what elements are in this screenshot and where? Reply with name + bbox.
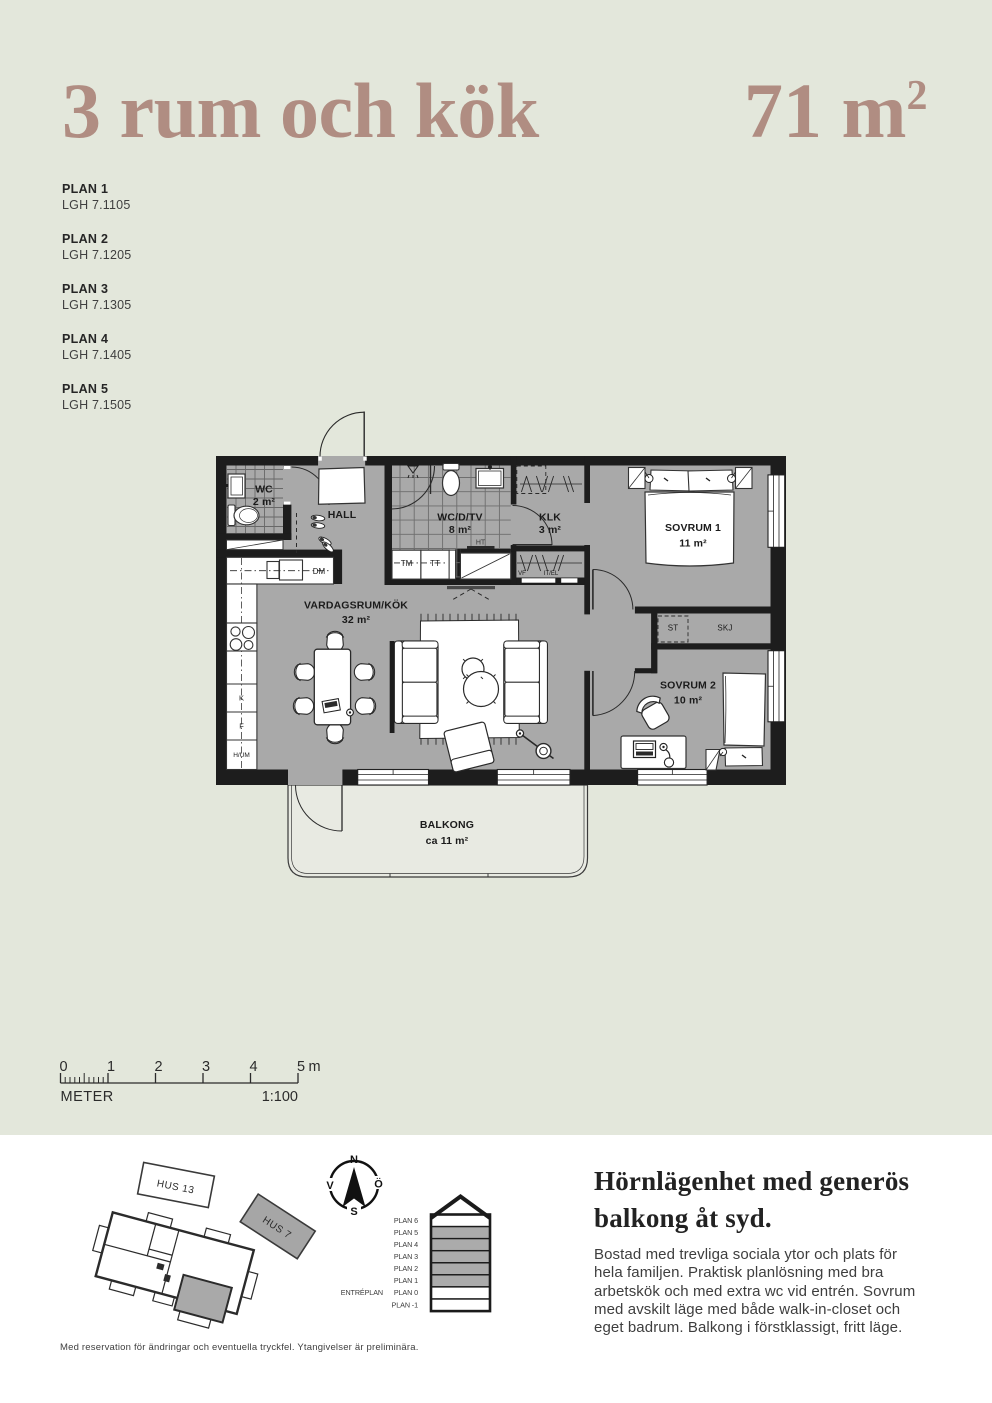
svg-text:3: 3 bbox=[202, 1059, 210, 1075]
svg-text:2: 2 bbox=[155, 1059, 163, 1075]
svg-text:0: 0 bbox=[60, 1059, 68, 1075]
svg-text:TT: TT bbox=[430, 559, 440, 568]
svg-text:PLAN 4: PLAN 4 bbox=[394, 1240, 418, 1249]
svg-text:F: F bbox=[239, 722, 244, 731]
svg-text:H/UM: H/UM bbox=[233, 752, 250, 759]
svg-text:WC/D/TV: WC/D/TV bbox=[437, 512, 482, 524]
svg-text:ST: ST bbox=[668, 624, 679, 633]
svg-text:8 m²: 8 m² bbox=[449, 524, 472, 536]
svg-text:10 m²: 10 m² bbox=[674, 695, 703, 707]
svg-text:DM: DM bbox=[313, 567, 326, 576]
svg-text:PLAN -1: PLAN -1 bbox=[392, 1300, 419, 1309]
svg-text:3 m²: 3 m² bbox=[539, 524, 562, 536]
svg-text:HT: HT bbox=[476, 540, 486, 547]
svg-text:ca 11 m²: ca 11 m² bbox=[426, 835, 469, 847]
svg-text:PLAN 2: PLAN 2 bbox=[394, 1264, 418, 1273]
svg-text:SOVRUM 1: SOVRUM 1 bbox=[665, 522, 721, 534]
svg-text:VF: VF bbox=[518, 571, 526, 577]
svg-text:11 m²: 11 m² bbox=[679, 538, 707, 550]
svg-text:m: m bbox=[309, 1059, 321, 1075]
svg-text:Ö: Ö bbox=[374, 1178, 383, 1191]
svg-text:PLAN 0: PLAN 0 bbox=[394, 1288, 418, 1297]
svg-text:N: N bbox=[350, 1154, 358, 1166]
svg-text:4: 4 bbox=[250, 1059, 258, 1075]
svg-text:SOVRUM 2: SOVRUM 2 bbox=[660, 680, 716, 692]
svg-text:WC: WC bbox=[255, 484, 273, 496]
svg-text:1: 1 bbox=[107, 1059, 115, 1075]
svg-text:VARDAGSRUM/KÖK: VARDAGSRUM/KÖK bbox=[304, 599, 408, 612]
svg-text:PLAN 5: PLAN 5 bbox=[394, 1228, 418, 1237]
svg-text:PLAN 6: PLAN 6 bbox=[394, 1216, 418, 1225]
svg-text:K: K bbox=[239, 694, 244, 703]
svg-text:HALL: HALL bbox=[328, 509, 357, 521]
svg-text:PLAN 1: PLAN 1 bbox=[394, 1276, 418, 1285]
svg-text:TM: TM bbox=[401, 559, 413, 568]
svg-text:IT/EL: IT/EL bbox=[544, 571, 559, 577]
svg-text:METER: METER bbox=[61, 1089, 114, 1105]
svg-text:1:100: 1:100 bbox=[262, 1089, 298, 1105]
svg-text:BALKONG: BALKONG bbox=[420, 819, 474, 831]
svg-text:5: 5 bbox=[297, 1059, 305, 1075]
svg-text:ENTRÉPLAN: ENTRÉPLAN bbox=[341, 1288, 383, 1297]
svg-text:2 m²: 2 m² bbox=[253, 496, 276, 508]
svg-text:KLK: KLK bbox=[539, 512, 561, 524]
svg-text:SKJ: SKJ bbox=[717, 624, 732, 633]
svg-text:PLAN 3: PLAN 3 bbox=[394, 1252, 418, 1261]
svg-text:32 m²: 32 m² bbox=[342, 614, 371, 626]
